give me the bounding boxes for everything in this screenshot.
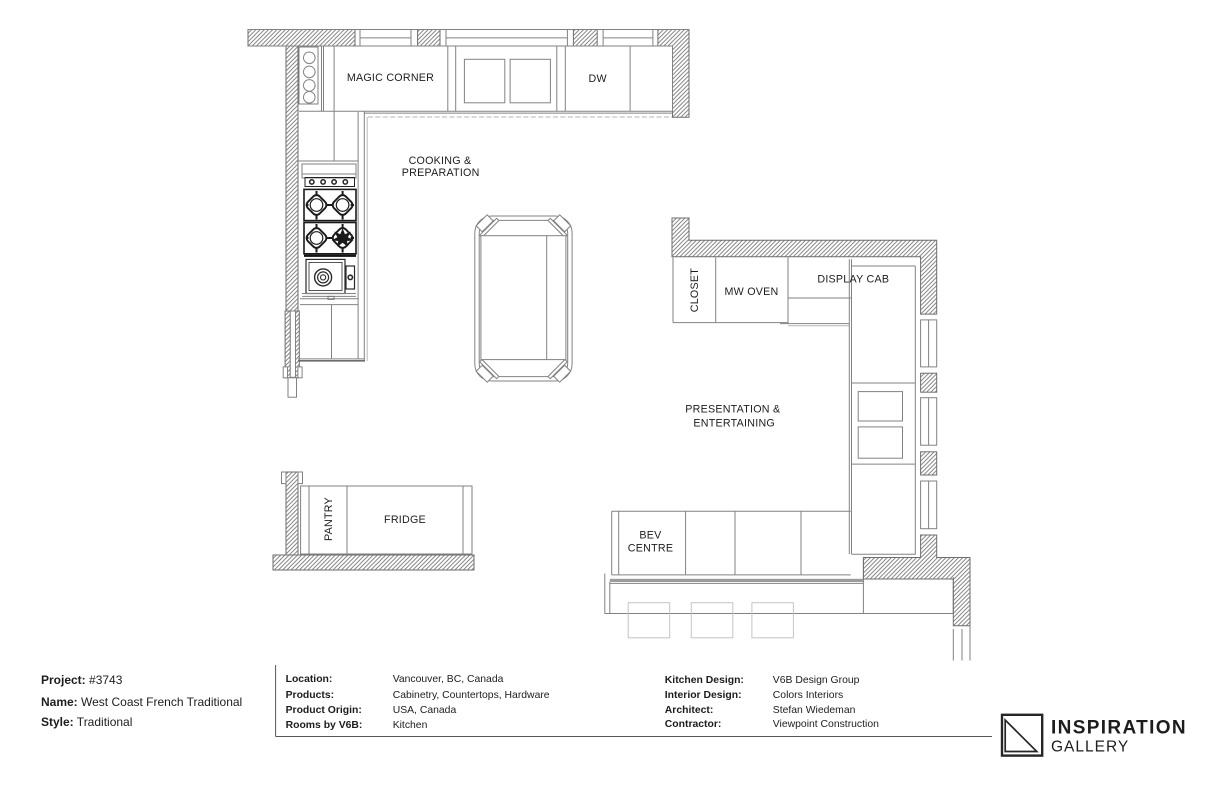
svg-text:Style: Traditional: Style: Traditional	[41, 715, 132, 729]
svg-text:Kitchen Design:: Kitchen Design:	[665, 675, 744, 686]
svg-text:Architect:: Architect:	[665, 705, 714, 716]
svg-text:DISPLAY CAB: DISPLAY CAB	[817, 274, 889, 286]
svg-text:Interior Design:: Interior Design:	[665, 690, 742, 701]
svg-text:Products:: Products:	[286, 690, 335, 701]
svg-text:Stefan Wiedeman: Stefan Wiedeman	[773, 705, 856, 716]
svg-text:FRIDGE: FRIDGE	[384, 514, 426, 526]
svg-text:Location:: Location:	[286, 674, 333, 685]
svg-text:USA, Canada: USA, Canada	[393, 705, 457, 716]
svg-text:Cabinetry, Countertops, Hardwa: Cabinetry, Countertops, Hardware	[393, 690, 550, 701]
svg-text:ENTERTAINING: ENTERTAINING	[693, 418, 775, 430]
svg-text:MW OVEN: MW OVEN	[725, 286, 779, 298]
svg-text:BEV: BEV	[639, 530, 662, 542]
svg-text:Contractor:: Contractor:	[665, 719, 722, 730]
svg-text:DW: DW	[589, 73, 608, 85]
svg-text:Viewpoint Construction: Viewpoint Construction	[773, 719, 879, 730]
svg-text:Vancouver, BC, Canada: Vancouver, BC, Canada	[393, 674, 504, 685]
svg-text:Colors Interiors: Colors Interiors	[773, 690, 843, 701]
svg-text:MAGIC CORNER: MAGIC CORNER	[347, 72, 434, 84]
svg-text:Project: #3743: Project: #3743	[41, 673, 123, 687]
svg-text:Name: West Coast French Tradit: Name: West Coast French Traditional	[41, 695, 242, 709]
svg-text:INSPIRATION: INSPIRATION	[1051, 718, 1187, 739]
svg-text:CENTRE: CENTRE	[628, 542, 673, 554]
svg-text:PREPARATION: PREPARATION	[402, 167, 480, 179]
svg-text:Kitchen: Kitchen	[393, 720, 428, 731]
svg-text:V6B Design Group: V6B Design Group	[773, 675, 860, 686]
svg-text:COOKING &: COOKING &	[409, 155, 472, 167]
svg-text:PANTRY: PANTRY	[323, 497, 335, 541]
svg-text:Product Origin:: Product Origin:	[286, 705, 362, 716]
svg-text:PRESENTATION &: PRESENTATION &	[685, 404, 780, 416]
svg-text:CLOSET: CLOSET	[689, 268, 701, 312]
svg-text:GALLERY: GALLERY	[1051, 739, 1129, 756]
svg-text:Rooms by V6B:: Rooms by V6B:	[286, 720, 363, 731]
